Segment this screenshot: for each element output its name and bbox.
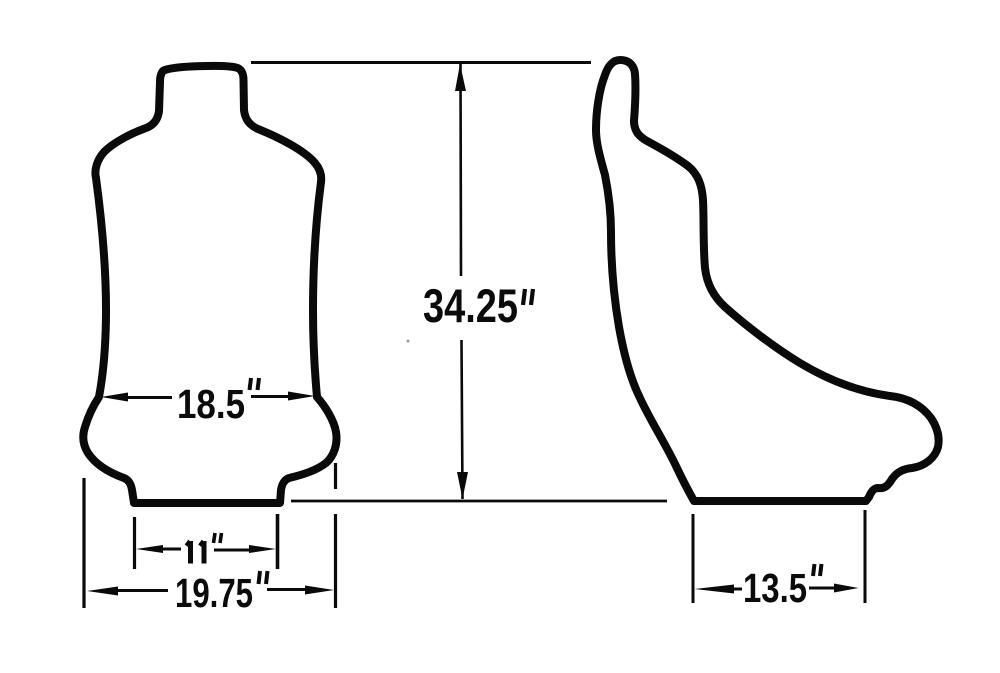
svg-text:34.25: 34.25	[423, 279, 518, 332]
svg-text:13.5: 13.5	[743, 565, 807, 611]
svg-text:18.5: 18.5	[177, 381, 245, 427]
svg-text:19.75: 19.75	[175, 570, 253, 616]
